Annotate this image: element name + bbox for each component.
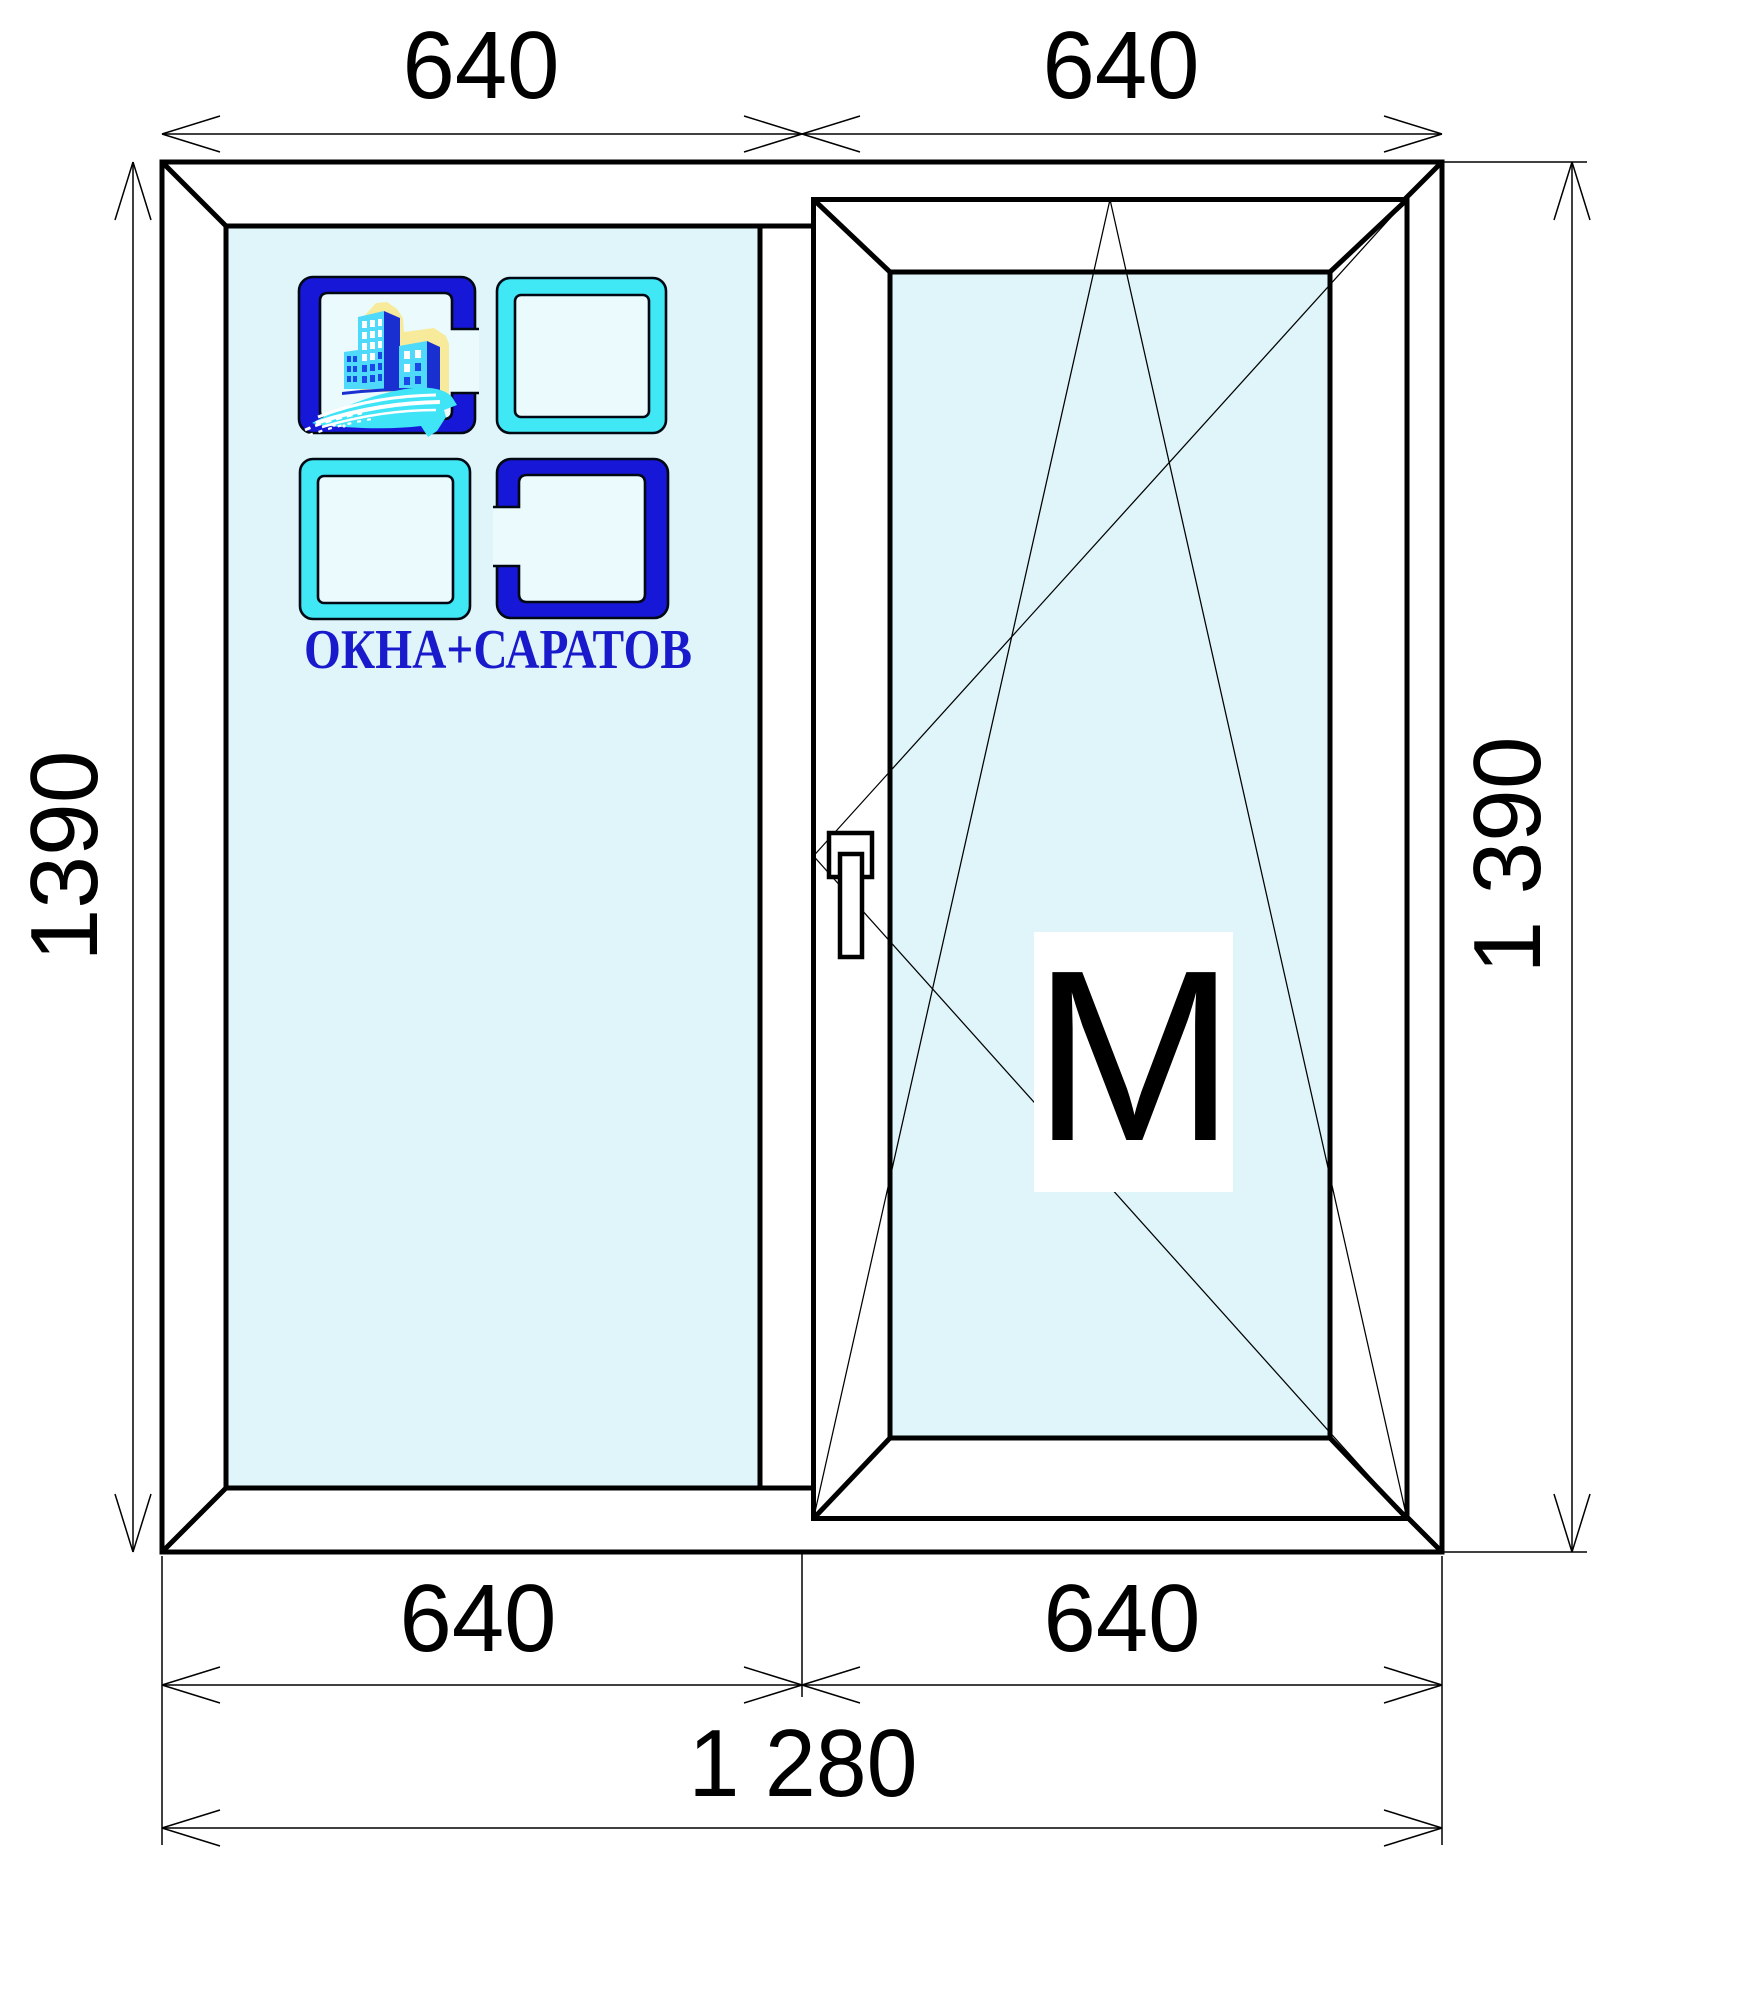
svg-text:640: 640 <box>1043 12 1200 119</box>
svg-text:1 280: 1 280 <box>689 1710 918 1817</box>
svg-text:ОКНА+САРАТОВ: ОКНА+САРАТОВ <box>304 619 692 681</box>
svg-text:1 390: 1 390 <box>1454 737 1561 974</box>
svg-text:640: 640 <box>403 12 560 119</box>
svg-text:640: 640 <box>1044 1565 1201 1672</box>
svg-text:640: 640 <box>400 1565 557 1672</box>
svg-text:1390: 1390 <box>11 751 118 962</box>
svg-text:M: M <box>1032 919 1235 1192</box>
